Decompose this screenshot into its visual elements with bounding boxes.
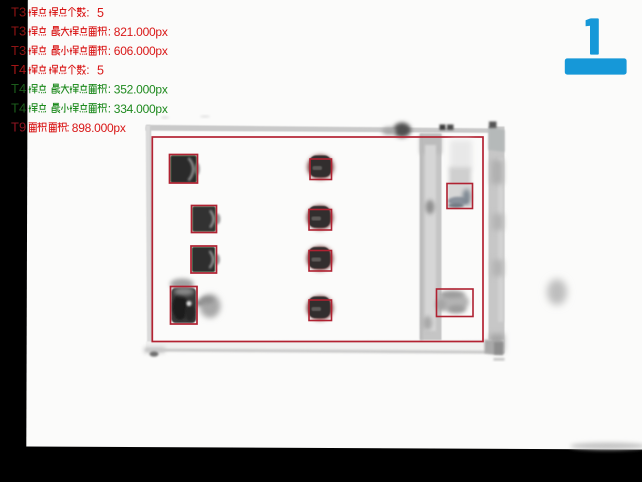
svg-text:898.000px: 898.000px bbox=[72, 121, 126, 135]
svg-text:T4: T4 bbox=[11, 81, 26, 96]
svg-text::: : bbox=[66, 121, 69, 135]
svg-text::: : bbox=[108, 101, 111, 115]
svg-text::: : bbox=[108, 44, 111, 58]
svg-text:T3: T3 bbox=[11, 43, 26, 58]
svg-text:352.000px: 352.000px bbox=[114, 83, 168, 97]
svg-text::: : bbox=[108, 25, 111, 39]
svg-text:T4: T4 bbox=[11, 100, 26, 115]
svg-text:T3: T3 bbox=[11, 24, 26, 39]
svg-text:T9: T9 bbox=[11, 120, 26, 135]
svg-text::: : bbox=[86, 63, 89, 77]
svg-text:5: 5 bbox=[97, 63, 104, 77]
svg-text:334.000px: 334.000px bbox=[114, 102, 168, 116]
svg-text:5: 5 bbox=[97, 6, 104, 20]
svg-text:T4: T4 bbox=[11, 62, 26, 77]
svg-text:606.000px: 606.000px bbox=[114, 44, 168, 58]
svg-text::: : bbox=[108, 82, 111, 96]
svg-text:821.000px: 821.000px bbox=[114, 25, 168, 39]
svg-text:T3: T3 bbox=[11, 4, 26, 19]
svg-text::: : bbox=[86, 5, 89, 19]
